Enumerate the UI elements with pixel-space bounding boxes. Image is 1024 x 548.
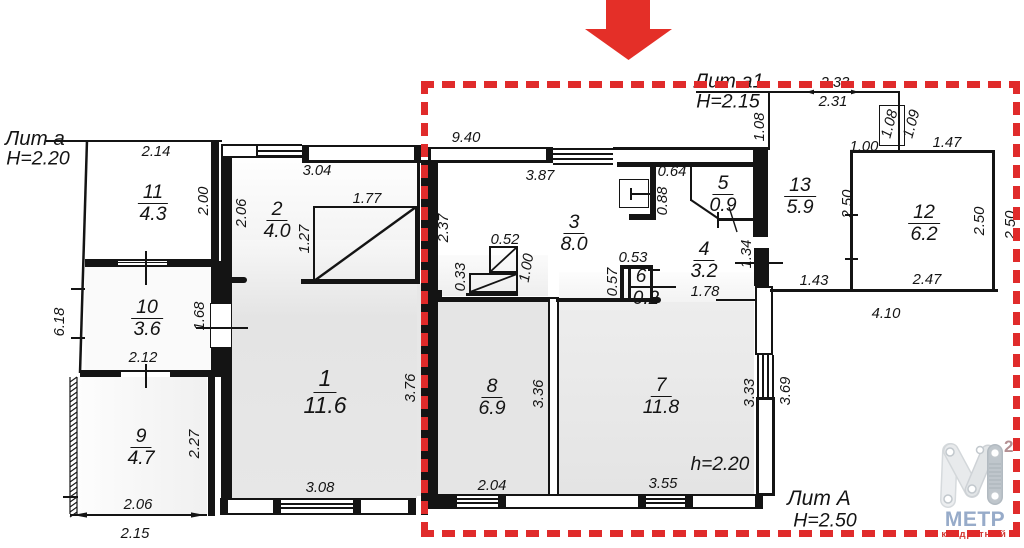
- svg-text:МЕТР: МЕТР: [945, 508, 1005, 531]
